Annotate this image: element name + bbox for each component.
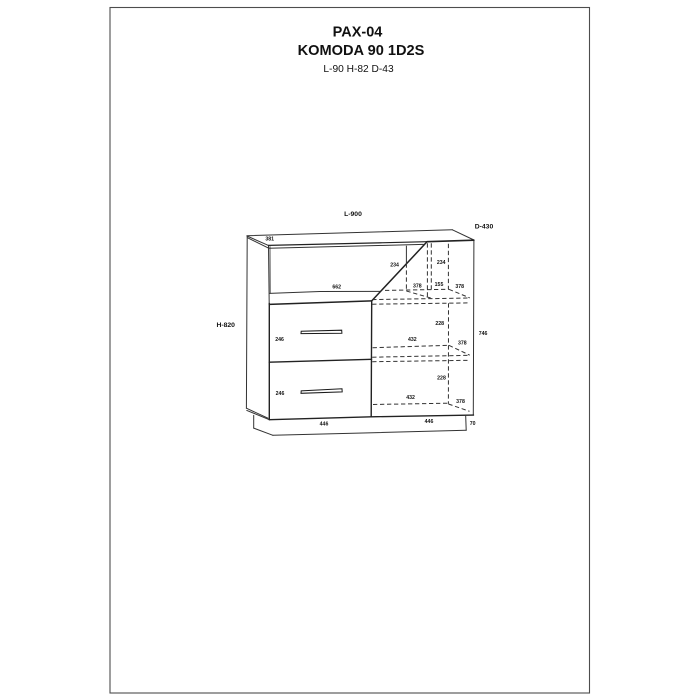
svg-text:KOMODA 90 1D2S: KOMODA 90 1D2S xyxy=(298,43,425,59)
svg-text:D-430: D-430 xyxy=(475,224,494,231)
svg-text:228: 228 xyxy=(437,376,446,382)
svg-text:L-90 H-82 D-43: L-90 H-82 D-43 xyxy=(323,64,394,75)
svg-text:228: 228 xyxy=(435,321,444,327)
svg-text:378: 378 xyxy=(455,284,464,290)
svg-text:234: 234 xyxy=(390,262,399,268)
svg-text:446: 446 xyxy=(320,421,329,427)
svg-text:234: 234 xyxy=(437,260,446,266)
svg-text:378: 378 xyxy=(456,399,465,405)
svg-text:378: 378 xyxy=(458,341,467,347)
svg-text:381: 381 xyxy=(265,237,274,243)
svg-text:70: 70 xyxy=(470,421,476,427)
svg-text:378: 378 xyxy=(413,283,422,289)
svg-text:662: 662 xyxy=(332,284,341,290)
svg-text:H-820: H-820 xyxy=(216,322,235,329)
svg-text:L-900: L-900 xyxy=(344,211,362,218)
svg-text:432: 432 xyxy=(408,337,417,343)
svg-text:446: 446 xyxy=(425,419,434,425)
svg-text:155: 155 xyxy=(435,282,444,288)
svg-text:PAX-04: PAX-04 xyxy=(333,24,383,40)
svg-text:746: 746 xyxy=(479,331,488,337)
svg-text:432: 432 xyxy=(406,395,415,401)
svg-text:246: 246 xyxy=(275,337,284,343)
svg-text:246: 246 xyxy=(276,391,285,397)
